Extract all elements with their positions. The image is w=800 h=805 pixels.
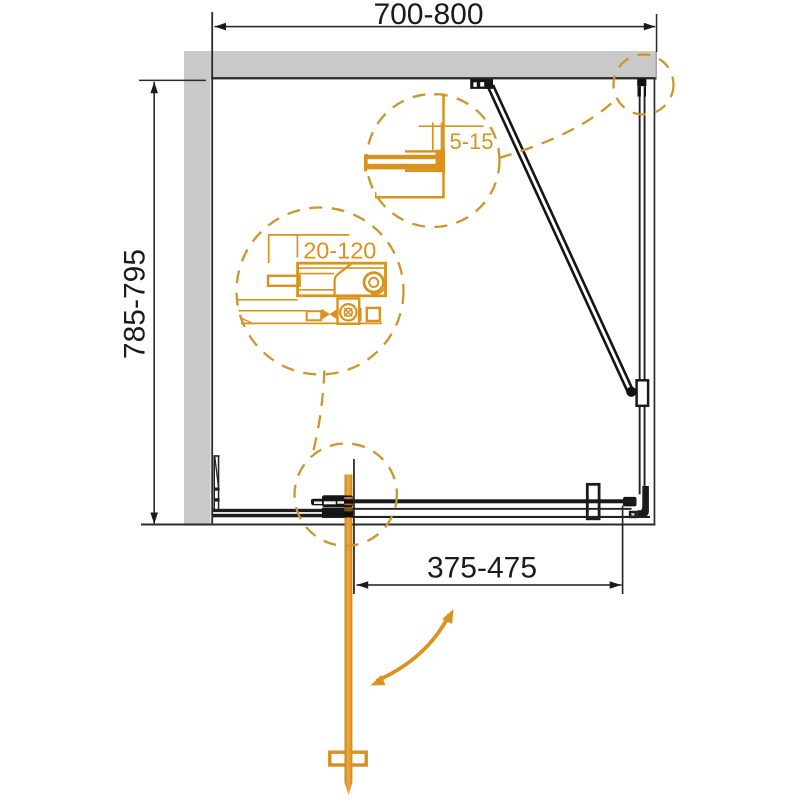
svg-text:5-15: 5-15: [449, 129, 493, 154]
svg-text:785-795: 785-795: [118, 249, 151, 359]
svg-text:20-120: 20-120: [303, 237, 376, 263]
svg-text:700-800: 700-800: [373, 0, 483, 31]
svg-text:375-475: 375-475: [427, 552, 537, 585]
